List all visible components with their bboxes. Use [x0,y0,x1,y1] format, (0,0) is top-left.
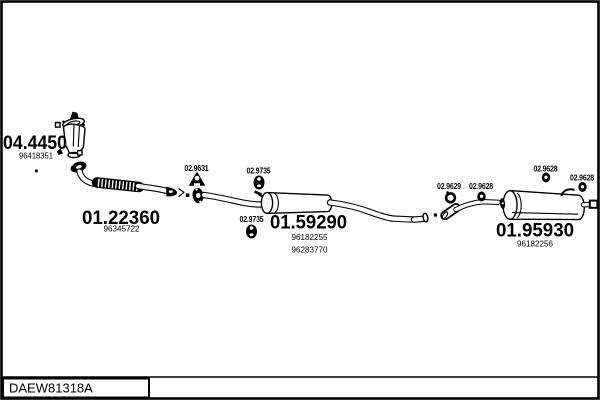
part-number-grommet-joint: 02.9628 [469,181,493,191]
grommet-icon [578,182,586,192]
part-number-grommet-mid: 02.9628 [534,164,558,174]
part-ref2-centre-silencer: 96283770 [292,245,328,255]
clamp-icon [446,192,455,203]
part-ref1-centre-silencer: 96182255 [292,232,328,242]
diagram-canvas: 04.4450 96418351 01.22360 96345722 02.96… [0,0,600,400]
part-number-centre-silencer: 01.59290 [270,213,347,234]
part-ref-rear-silencer: 96182256 [517,239,553,249]
bolt-dot [186,193,190,197]
part-ref-catalyst: 96418351 [19,151,53,161]
rubber-mount-icon [254,176,265,190]
tailpipe-tip [590,201,598,208]
part-number-clamp: 02.9629 [437,181,461,191]
flex-section [97,183,139,188]
exhaust-parts-diagram: 04.4450 96418351 01.22360 96345722 02.96… [0,0,600,400]
grommet-icon [477,192,485,202]
rubber-mount-icon [246,225,257,239]
part-number-rubber-mount-front: 02.9735 [247,166,271,176]
drawing-code: DAEW81318A [9,381,93,396]
part-number-rubber-mount-rear: 02.9735 [240,214,264,224]
bolt-dot [35,170,38,173]
part-ref-front-pipe: 96345722 [104,224,140,234]
part-number-grommet-tail: 02.9628 [570,173,594,183]
part-number-hanger-bracket: 02.9631 [185,163,209,173]
bolt-dot [434,213,437,216]
grommet-icon [542,173,550,183]
